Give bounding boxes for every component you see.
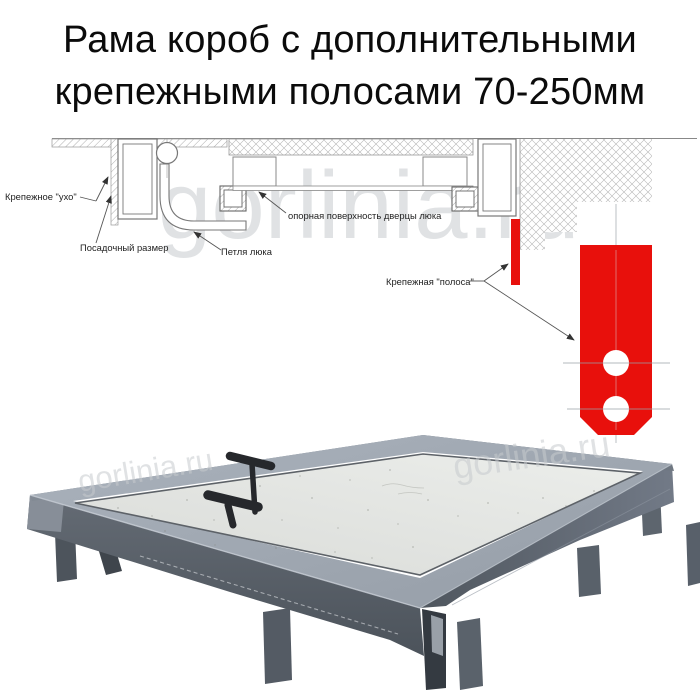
label-ear: Крепежное "ухо"	[5, 191, 77, 202]
door-stiffener-left	[233, 157, 276, 186]
product-image: Рама короб с дополнительными крепежными …	[0, 0, 700, 700]
fastening-strip	[511, 219, 520, 285]
leg	[577, 545, 601, 597]
frame-profile-left	[118, 139, 157, 219]
label-support-surface: опорная поверхность дверцы люка	[288, 210, 442, 221]
door-sheet	[233, 186, 473, 191]
t-handle-stem	[228, 505, 233, 525]
wall-section	[520, 139, 652, 250]
leg	[457, 618, 483, 690]
page-title: Рама короб с дополнительными крепежными …	[0, 14, 700, 118]
title-line-1: Рама короб с дополнительными	[0, 14, 700, 66]
label-strip: Крепежная "полоса"	[386, 276, 474, 287]
leg	[686, 522, 700, 586]
leg	[263, 608, 292, 684]
frame-corner-reveal	[431, 615, 443, 656]
hinge-pivot	[157, 143, 178, 164]
hinge-mount-right	[452, 187, 478, 211]
mounting-ear	[111, 139, 118, 225]
product-photo: gorlinia.ru gorlinia.ru	[27, 423, 700, 690]
label-hinge: Петля люка	[221, 246, 273, 257]
title-line-2: крепежными полосами 70-250мм	[0, 66, 700, 118]
door-stiffener-right	[423, 157, 467, 186]
label-seat-size: Посадочный размер	[80, 242, 168, 253]
door-drywall-panel	[229, 139, 473, 155]
frame-profile-right	[478, 139, 516, 216]
